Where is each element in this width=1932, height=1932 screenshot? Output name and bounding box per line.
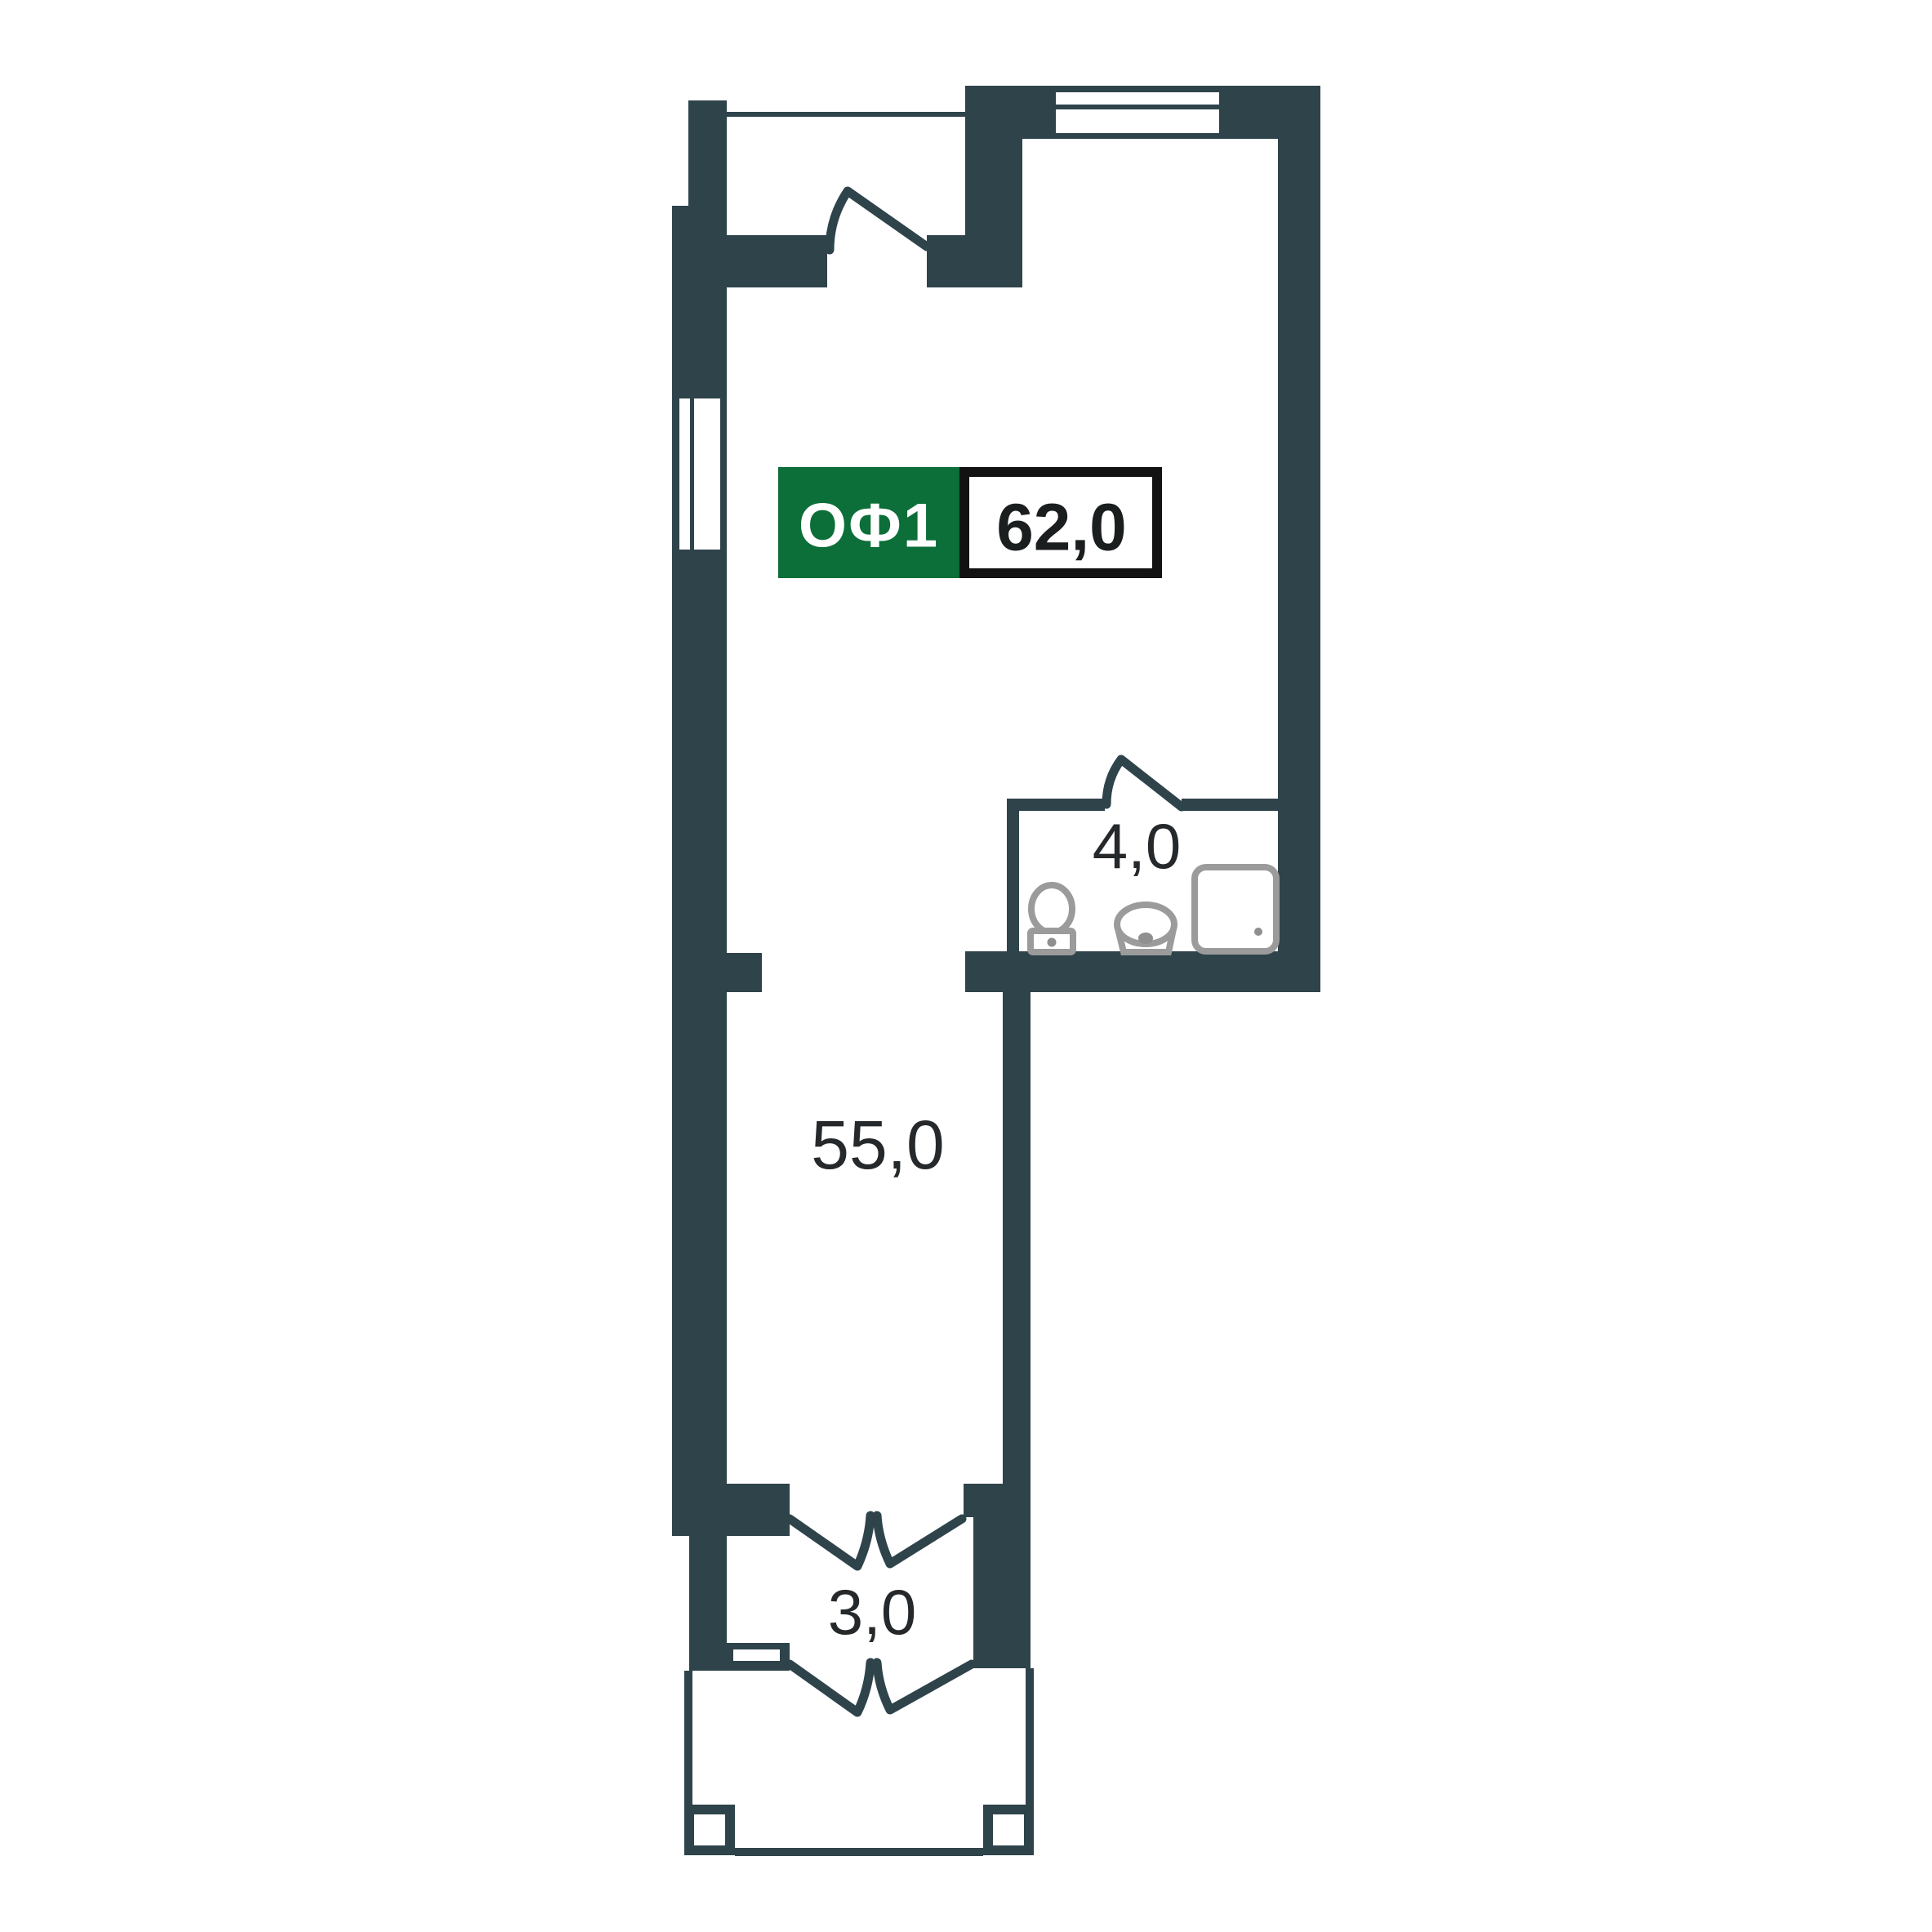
window-icon — [733, 1649, 780, 1661]
wall-segment-topleft-pier — [688, 100, 727, 207]
wall-segment-bath-left-thin — [1007, 799, 1019, 951]
toilet-bowl — [1031, 885, 1072, 933]
door-swing-icon — [877, 1663, 972, 1710]
floor-plan-svg: ОФ1 62,0 55,0 4,0 3,0 — [0, 0, 1932, 1932]
unit-badge: ОФ1 62,0 — [778, 467, 1157, 578]
wall-segment-corridor-right — [1003, 992, 1031, 1484]
door-swing-icon — [1106, 759, 1182, 807]
walls-layer — [672, 86, 1320, 1856]
window-icon — [679, 398, 720, 550]
window-pane — [694, 398, 720, 550]
window-pane — [1056, 92, 1219, 105]
toilet-icon — [1031, 885, 1073, 952]
wall-segment-alcove-top-line — [727, 112, 965, 117]
window-pane — [733, 1649, 780, 1661]
floor-plan-canvas: ОФ1 62,0 55,0 4,0 3,0 — [0, 0, 1932, 1932]
window-pane — [679, 398, 690, 550]
sink-icon — [1117, 905, 1174, 952]
wall-segment-right-main — [1278, 139, 1320, 992]
column-core — [694, 1814, 725, 1845]
room-area-label-bathroom: 4,0 — [1093, 810, 1181, 882]
wall-segment-porch-left — [684, 1671, 692, 1805]
window-pane — [1056, 109, 1219, 133]
unit-total-area: 62,0 — [996, 491, 1127, 565]
wall-segment-bath-top-a — [1007, 799, 1105, 811]
porch-column-inner — [694, 1814, 1024, 1845]
door-swing-icon — [877, 1516, 962, 1564]
wall-segment-bathroom-bottom — [965, 951, 1320, 992]
wall-segment-bath-top-b — [1182, 799, 1278, 811]
wall-segment-left-pier-mid — [727, 953, 762, 992]
door-swing-icon — [790, 1516, 870, 1566]
wall-segment-alcove-bottom-right — [927, 235, 1022, 287]
sink-drain — [1138, 933, 1153, 944]
shower-tray — [1195, 867, 1276, 951]
shower-drain — [1254, 928, 1262, 936]
wall-segment-vestibule-pier-left — [727, 1484, 790, 1536]
wall-segment-vestibule-pier-right — [964, 1484, 1031, 1517]
window-icon — [1056, 92, 1219, 133]
door-swing-icon — [830, 191, 927, 250]
unit-label: ОФ1 — [799, 492, 939, 561]
wall-segment-alcove-bottom-left — [672, 235, 827, 287]
wall-segment-porch-bottom — [735, 1848, 983, 1856]
shower-tray-icon — [1195, 867, 1276, 951]
wall-segment-left-lower — [689, 1536, 727, 1671]
door-swing-icon — [790, 1663, 870, 1712]
room-area-label-entrance: 3,0 — [828, 1576, 916, 1648]
wall-segment-porch-right — [1026, 1668, 1034, 1805]
room-area-label-main: 55,0 — [811, 1106, 945, 1183]
toilet-button — [1048, 938, 1057, 947]
column-core — [993, 1814, 1024, 1845]
wall-segment-vestibule-right — [973, 1517, 1031, 1668]
